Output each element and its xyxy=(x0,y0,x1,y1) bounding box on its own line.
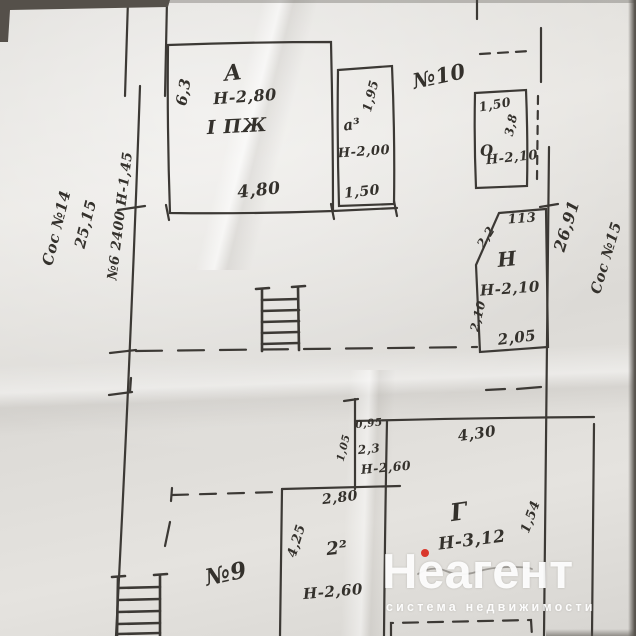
right-wall-tick xyxy=(540,204,558,207)
room-2-top-wall xyxy=(282,486,400,489)
dimension-tick xyxy=(171,488,172,501)
dashed-wall xyxy=(480,51,530,54)
dashed-wall xyxy=(172,492,278,495)
right-outer-wall xyxy=(592,424,594,636)
stairs-icon xyxy=(256,286,305,351)
room-n-top-dim: 113 xyxy=(507,212,536,227)
room-n-ceiling-height: Н-2,10 xyxy=(480,279,541,298)
dimension-tick xyxy=(166,205,169,220)
dashed-wall xyxy=(486,389,505,390)
dashed-wall xyxy=(537,96,538,179)
room-a3-ceiling-height: Н-2,00 xyxy=(337,144,390,161)
center-dashed-line xyxy=(136,347,477,351)
boundary-dash xyxy=(130,378,131,392)
room-n-letter: Н xyxy=(496,248,517,270)
illegible-handwriting xyxy=(418,567,532,574)
room-2-width-dim: 2,80 xyxy=(321,489,359,507)
room-a-ceiling-height: Н-2,80 xyxy=(213,87,278,107)
room-2-letter: 2² xyxy=(325,539,348,559)
room-a3-width-dim: 1,50 xyxy=(343,183,380,201)
porch-dashed-outline xyxy=(391,620,532,636)
cross-wall xyxy=(355,417,594,421)
left-wall-tick xyxy=(110,350,136,353)
stairs-bottom-icon xyxy=(112,574,167,636)
closet-area: 2,3 xyxy=(357,442,381,456)
dashed-wall xyxy=(517,387,541,389)
closet-width-dim: 0,95 xyxy=(355,417,384,430)
dimension-line xyxy=(333,208,397,211)
plan-line-work xyxy=(0,0,636,636)
room-g-letter: Г xyxy=(449,499,469,525)
room-g-left-wall xyxy=(384,421,387,636)
dashed-wall xyxy=(165,522,170,546)
room-a-width-dim: 4,80 xyxy=(237,180,282,201)
room-a-letter: А xyxy=(223,61,244,85)
scanned-floor-plan: Сос №14 25,15 №6 2400 Н-1,45 26,91 Сос №… xyxy=(0,0,636,636)
flue-wall xyxy=(125,0,128,96)
room-a3-letter: а³ xyxy=(342,116,361,133)
room-a-note: I ПЖ xyxy=(206,116,267,138)
room-2-left-wall xyxy=(280,489,282,636)
